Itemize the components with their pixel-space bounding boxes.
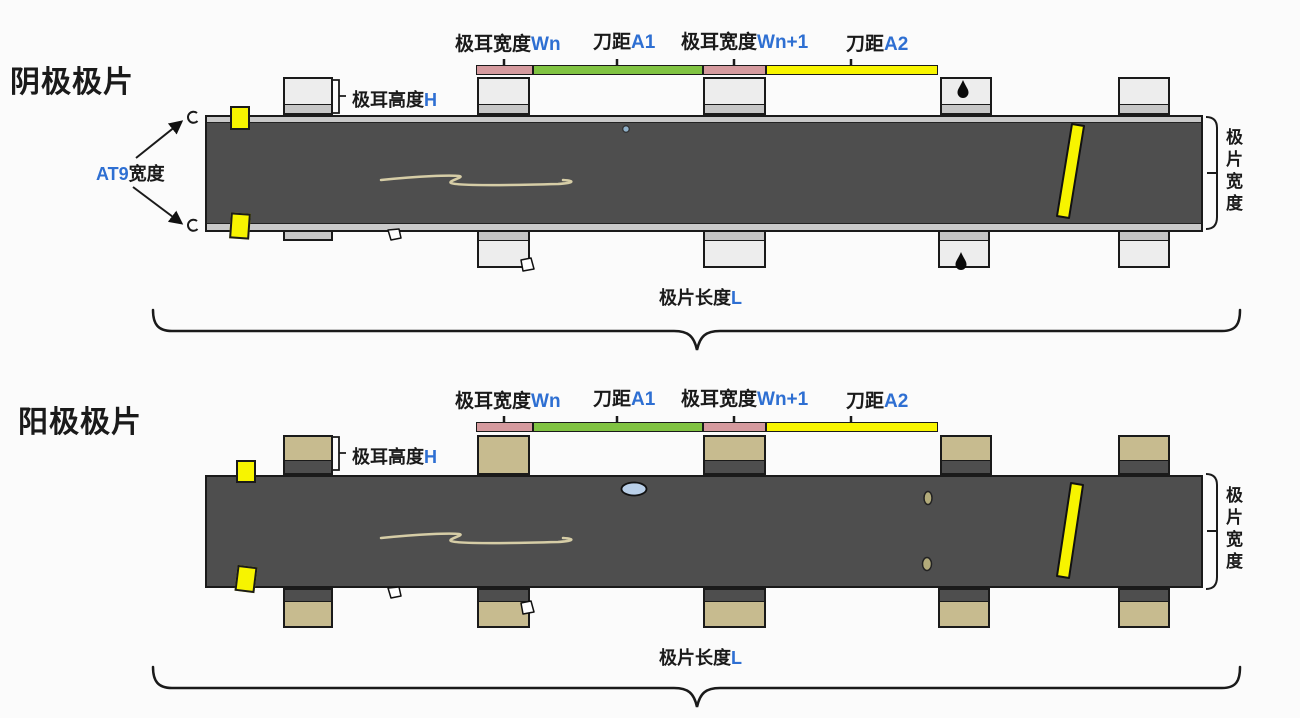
cathode-tab-width-bar — [476, 65, 533, 75]
anode-sheet-length-label: 极片长度L — [659, 644, 742, 670]
at9-hook-bottom — [188, 220, 198, 231]
label-variable: Wn+1 — [757, 389, 808, 410]
label-variable: Wn — [531, 34, 561, 55]
cathode-bottom-tab-4 — [938, 230, 990, 268]
anode-tab-height-bracket — [333, 437, 346, 470]
anode-tab-width-bar — [476, 422, 533, 432]
cathode-top-tab-3 — [703, 77, 766, 115]
label-text: 刀距 — [846, 391, 884, 412]
anode-bottom-tab-4 — [938, 588, 990, 628]
anode-bottom-tab-3 — [703, 588, 766, 628]
anode-knife-a2-bar — [766, 422, 938, 432]
cathode-sheet-length-brace — [153, 310, 1240, 350]
label-text: 刀距 — [593, 32, 631, 53]
anode-yellow-marker-top — [236, 460, 256, 483]
label-variable: Wn — [531, 391, 561, 412]
cathode-knife-a2-bar — [766, 65, 938, 75]
tab-band — [1120, 104, 1168, 113]
label-text: 极耳宽度 — [681, 32, 757, 53]
cathode-at9-width-label: AT9宽度 — [96, 160, 165, 186]
anode-tab-width-label: 极耳宽度Wn — [455, 386, 561, 413]
cathode-tab-height-bracket — [333, 80, 346, 113]
anode-sheet-width-label: 极片宽度 — [1224, 486, 1241, 574]
label-text: 极耳宽度 — [455, 391, 531, 412]
cathode-sheet-width-label: 极片宽度 — [1224, 128, 1241, 216]
cathode-top-tab-1 — [283, 77, 333, 115]
cathode-bottom-tab-1 — [283, 230, 333, 241]
anode-knife-a1-label: 刀距A1 — [593, 384, 655, 411]
anode-title: 阳极极片 — [18, 397, 142, 441]
cathode-bottom-tab-3 — [703, 230, 766, 268]
anode-tab-height-label: 极耳高度H — [352, 443, 437, 469]
label-variable: A2 — [884, 391, 908, 412]
cathode-top-tab-4 — [940, 77, 992, 115]
tab-band — [705, 590, 764, 602]
tab-band — [705, 104, 764, 113]
anode-knife-a1-bar — [533, 422, 703, 432]
label-variable: H — [424, 447, 437, 467]
anode-yellow-marker-bottom — [234, 565, 257, 593]
cathode-knife-a1-label: 刀距A1 — [593, 27, 655, 54]
at9-hook-top — [188, 112, 198, 123]
anode-bottom-tab-2 — [477, 588, 530, 628]
label-text: 刀距 — [593, 389, 631, 410]
anode-sheet-width-bracket — [1206, 474, 1217, 589]
label-variable: A2 — [884, 34, 908, 55]
anode-top-tab-2 — [477, 435, 530, 475]
label-variable: AT9 — [96, 164, 129, 184]
tab-band — [942, 104, 990, 113]
cathode-tab-height-label: 极耳高度H — [352, 86, 437, 112]
anode-bottom-tab-5 — [1118, 588, 1170, 628]
tab-band — [479, 590, 528, 602]
label-text: 极耳宽度 — [455, 34, 531, 55]
label-text: 极片长度 — [659, 288, 731, 308]
cathode-yellow-marker-bottom — [229, 212, 251, 239]
at9-arrow-bottom — [133, 187, 181, 223]
label-text: 刀距 — [846, 34, 884, 55]
tab-band — [940, 232, 988, 241]
tab-band — [479, 104, 528, 113]
cathode-bottom-tab-2 — [477, 230, 530, 268]
anode-top-tab-4 — [940, 435, 992, 475]
anode-knife-a2-label: 刀距A2 — [846, 386, 908, 413]
anode-tab-width-n1-bar — [703, 422, 766, 432]
label-text: 极片长度 — [659, 648, 731, 668]
cathode-tab-width-n1-bar — [703, 65, 766, 75]
label-text: 宽度 — [129, 164, 165, 184]
anode-tab-width-n1-label: 极耳宽度Wn+1 — [681, 384, 808, 411]
cathode-knife-a2-label: 刀距A2 — [846, 29, 908, 56]
label-text: 极耳宽度 — [681, 389, 757, 410]
tab-band — [285, 590, 331, 602]
label-variable: L — [731, 648, 742, 668]
cathode-knife-a1-bar — [533, 65, 703, 75]
cathode-sheet-length-label: 极片长度L — [659, 284, 742, 310]
label-variable: L — [731, 288, 742, 308]
tab-band — [705, 232, 764, 241]
label-text: 极耳高度 — [352, 447, 424, 467]
tab-band — [942, 460, 990, 473]
strip-top-edge — [207, 117, 1201, 123]
cathode-top-tab-2 — [477, 77, 530, 115]
tab-band — [705, 460, 764, 473]
anode-bottom-tab-1 — [283, 588, 333, 628]
cathode-bottom-tab-5 — [1118, 230, 1170, 268]
cathode-yellow-marker-top — [230, 106, 250, 130]
anode-edge-notch — [388, 587, 401, 598]
label-text: 极耳高度 — [352, 90, 424, 110]
tab-band — [479, 232, 528, 241]
anode-top-tab-3 — [703, 435, 766, 475]
cathode-title: 阴极极片 — [10, 57, 134, 101]
anode-top-tab-5 — [1118, 435, 1170, 475]
at9-arrow-top — [136, 122, 181, 158]
cathode-strip — [205, 115, 1203, 232]
strip-bottom-edge — [207, 223, 1201, 230]
tab-band — [940, 590, 988, 602]
tab-band — [1120, 590, 1168, 602]
label-variable: A1 — [631, 32, 655, 53]
tab-band — [285, 460, 331, 473]
cathode-tab-width-label: 极耳宽度Wn — [455, 29, 561, 56]
electrode-sheet-diagram: 阴极极片 极耳宽度Wn 刀距A1 极耳宽度Wn+1 刀距A2 极耳高度H AT9… — [0, 0, 1300, 718]
tab-band — [1120, 460, 1168, 473]
cathode-tab-width-n1-label: 极耳宽度Wn+1 — [681, 27, 808, 54]
cathode-sheet-width-bracket — [1206, 117, 1217, 229]
label-variable: H — [424, 90, 437, 110]
anode-top-tab-1 — [283, 435, 333, 475]
tab-band — [285, 104, 331, 113]
tab-band — [1120, 232, 1168, 241]
label-variable: A1 — [631, 389, 655, 410]
anode-strip — [205, 475, 1203, 588]
anode-sheet-length-brace — [153, 667, 1240, 707]
cathode-top-tab-5 — [1118, 77, 1170, 115]
label-variable: Wn+1 — [757, 32, 808, 53]
annotation-layer — [0, 0, 1300, 718]
